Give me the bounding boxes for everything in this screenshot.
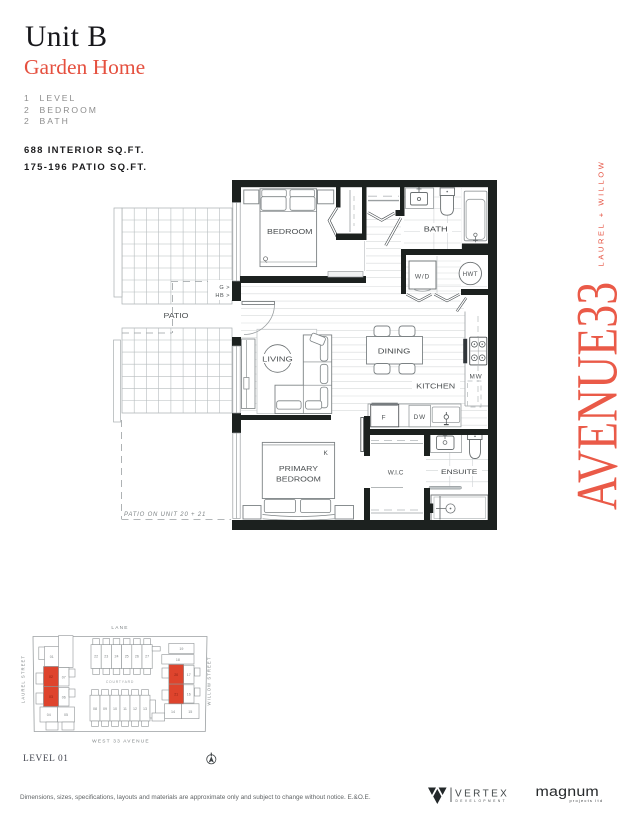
svg-text:LAUREL STREET: LAUREL STREET [21, 655, 26, 703]
svg-text:15: 15 [188, 710, 192, 714]
svg-text:BEDROOM: BEDROOM [276, 474, 321, 483]
svg-text:K: K [324, 450, 329, 457]
svg-text:PATIO ON UNIT 20 + 21: PATIO ON UNIT 20 + 21 [124, 512, 206, 518]
svg-text:W.I.C: W.I.C [388, 469, 404, 476]
svg-text:08: 08 [93, 707, 97, 711]
svg-text:01: 01 [50, 655, 54, 659]
svg-text:04: 04 [47, 713, 51, 717]
svg-text:HWT: HWT [463, 271, 478, 278]
svg-text:18: 18 [176, 658, 180, 662]
svg-text:PRIMARY: PRIMARY [279, 464, 318, 473]
svg-text:11: 11 [123, 707, 127, 711]
svg-text:24: 24 [115, 655, 119, 659]
svg-text:G >: G > [219, 285, 230, 291]
svg-text:WILLOW STREET: WILLOW STREET [207, 657, 212, 706]
svg-text:DEVELOPMENTS: DEVELOPMENTS [456, 799, 508, 803]
svg-text:BEDROOM: BEDROOM [267, 227, 313, 236]
svg-text:21: 21 [174, 693, 178, 697]
svg-text:W/D: W/D [415, 274, 430, 281]
svg-text:17: 17 [187, 673, 191, 677]
svg-text:F: F [382, 414, 387, 421]
svg-text:27: 27 [145, 655, 149, 659]
svg-text:23: 23 [104, 655, 108, 659]
svg-text:07: 07 [62, 675, 66, 679]
svg-text:BATH: BATH [424, 227, 448, 234]
svg-text:WEST 33 AVENUE: WEST 33 AVENUE [92, 739, 150, 745]
svg-text:VERTEX: VERTEX [455, 789, 507, 800]
svg-text:DINING: DINING [378, 346, 411, 355]
svg-text:16: 16 [187, 693, 191, 697]
svg-text:03: 03 [49, 695, 53, 699]
svg-text:HB >: HB > [215, 293, 230, 299]
svg-text:DW: DW [414, 414, 426, 421]
svg-text:02: 02 [49, 675, 53, 679]
svg-text:13: 13 [143, 707, 147, 711]
svg-text:25: 25 [125, 655, 129, 659]
svg-text:LANE: LANE [111, 625, 128, 631]
svg-text:22: 22 [94, 655, 98, 659]
svg-text:09: 09 [103, 707, 107, 711]
svg-text:COURTYARD: COURTYARD [106, 680, 134, 684]
svg-text:05: 05 [64, 713, 68, 717]
svg-text:KITCHEN: KITCHEN [416, 383, 455, 390]
svg-text:PATIO: PATIO [164, 311, 189, 320]
svg-text:26: 26 [135, 655, 139, 659]
svg-text:MW: MW [470, 374, 483, 381]
svg-text:19: 19 [179, 647, 183, 651]
svg-text:ENSUITE: ENSUITE [441, 469, 478, 476]
svg-text:06: 06 [62, 695, 66, 699]
svg-text:10: 10 [113, 707, 117, 711]
svg-text:14: 14 [171, 710, 175, 714]
svg-text:Q: Q [263, 256, 268, 263]
svg-text:20: 20 [174, 673, 178, 677]
svg-text:LIVING: LIVING [262, 355, 293, 364]
svg-text:12: 12 [133, 707, 137, 711]
